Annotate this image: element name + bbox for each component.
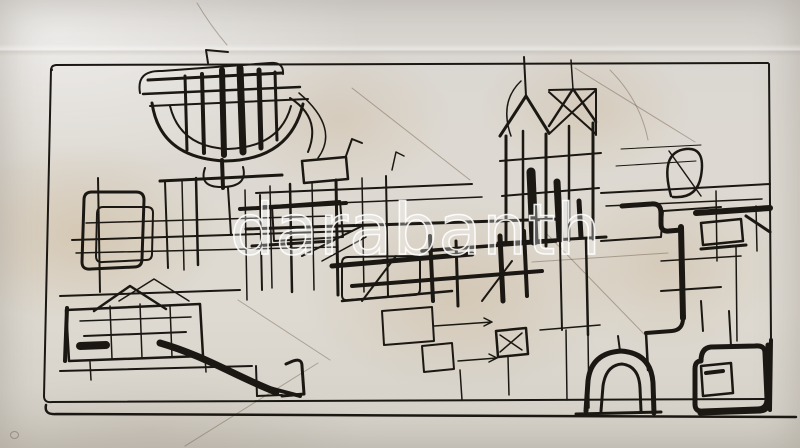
darabanth-watermark: darabanth — [230, 195, 602, 265]
artwork-photo: darabanth — [0, 0, 800, 448]
paper-blemish — [10, 431, 19, 439]
